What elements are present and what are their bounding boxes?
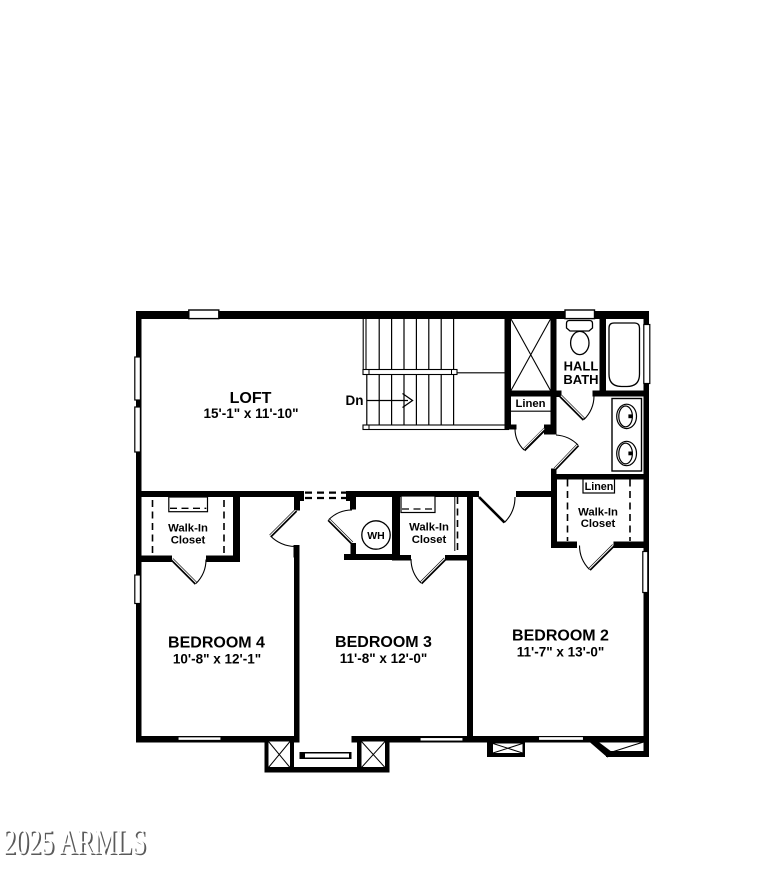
svg-text:BEDROOM 4: BEDROOM 4 (168, 634, 265, 651)
svg-text:Walk-In: Walk-In (578, 507, 618, 519)
svg-text:BATH: BATH (563, 372, 598, 387)
svg-text:15'-1" x 11'-10": 15'-1" x 11'-10" (203, 406, 298, 421)
svg-text:Closet: Closet (581, 518, 616, 530)
svg-text:LOFT: LOFT (230, 390, 272, 407)
svg-text:Closet: Closet (171, 535, 206, 547)
svg-text:11'-7" x 13'-0": 11'-7" x 13'-0" (517, 645, 605, 660)
svg-text:Walk-In: Walk-In (168, 523, 208, 535)
svg-text:BEDROOM 3: BEDROOM 3 (335, 634, 432, 651)
svg-text:Linen: Linen (585, 481, 614, 493)
svg-text:Closet: Closet (412, 534, 447, 546)
svg-text:10'-8" x 12'-1": 10'-8" x 12'-1" (173, 651, 261, 666)
svg-text:WH: WH (367, 530, 385, 542)
svg-text:11'-8" x 12'-0": 11'-8" x 12'-0" (340, 651, 428, 666)
svg-text:2025 ARMLS: 2025 ARMLS (3, 822, 146, 862)
svg-text:Linen: Linen (515, 398, 545, 410)
svg-text:Walk-In: Walk-In (409, 522, 449, 534)
svg-text:BEDROOM 2: BEDROOM 2 (512, 628, 609, 645)
svg-text:Dn: Dn (346, 393, 364, 408)
